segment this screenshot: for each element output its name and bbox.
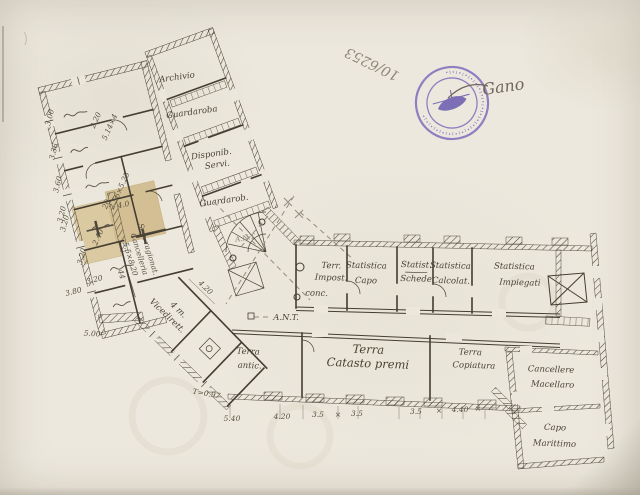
wall-410 <box>512 404 600 413</box>
dim-220: 2.20 <box>88 111 104 131</box>
door-arc <box>302 340 314 352</box>
dim-420: 4.20 <box>273 412 291 421</box>
room-label-archivio: Archivio <box>158 70 196 85</box>
room-label-statistica2: Statistica <box>430 261 471 272</box>
dim-35b: 3.5 <box>351 409 363 418</box>
circular-stamp: ∙ı∙ı∙ı∙ı∙ı∙ı∙ı∙ı∙ı∙ı∙ı∙ı∙ı∙ı∙ı∙ı∙ı∙ı∙ı∙ı… <box>409 60 494 145</box>
ant-label-lower: A.N.T. <box>272 313 299 323</box>
dim-sep: × <box>436 406 442 415</box>
ant-marker-box <box>248 313 254 319</box>
corner-pencil-mark <box>24 32 26 45</box>
file-number: 10/6253 <box>343 44 402 84</box>
room-label-antic: antic. <box>237 361 261 372</box>
dim-sep: ‥ <box>488 403 493 412</box>
dim-sep: × <box>475 404 481 413</box>
bottom-dimension-row: 5.40 4.20 3.5 × 3.5 3.5 × 4.40 × ‥ <box>224 403 494 423</box>
dim-540: 5.40 <box>224 414 241 423</box>
dim-35c: 3.5 <box>410 407 422 416</box>
room-label-statistica3: Statistica <box>494 261 535 272</box>
pencil-construction-lines <box>214 196 354 304</box>
top-wall <box>145 28 215 58</box>
dim-440: 4.40 <box>451 405 469 414</box>
room-label-macellaro: Macellaro <box>530 379 575 391</box>
room-label-conc: conc. <box>305 289 328 300</box>
scanned-floor-plan-sheet: 2.20 5.14×4 2.56×5.25 20 2.40 <box>0 0 640 495</box>
room-label-terra-copiatura: Terra <box>459 347 483 358</box>
room-label-marittimo: Marittimo <box>532 438 577 450</box>
room-label-copiatura: Copiatura <box>452 360 495 371</box>
right-wall-lower <box>174 194 194 254</box>
junction-wall <box>212 225 236 269</box>
dim-diagonal: 4.20 <box>196 278 215 297</box>
top-wall <box>294 240 592 251</box>
room-label-impost: Impost. <box>314 273 348 284</box>
window-gap <box>512 392 520 404</box>
room-label-impiegati: Impiegati <box>498 278 541 289</box>
floor-plan-drawing: 2.20 5.14×4 2.56×5.25 20 2.40 <box>0 0 640 495</box>
dim-380: 3.80 <box>64 285 83 298</box>
room-label-schede: Schede <box>400 274 432 285</box>
wall-350 <box>505 347 598 355</box>
room-label-statistica: Statistica <box>346 261 387 272</box>
room-label-terra-catasto: Terra <box>352 342 384 357</box>
room-label-capo: Capo <box>355 276 377 287</box>
wc-fixtures <box>199 338 220 359</box>
bottom-wall <box>518 457 604 469</box>
dim-500: 5.00 <box>84 329 101 339</box>
room-label-statist: Statist. <box>401 260 432 271</box>
room-label-calcolat: Calcolat. <box>432 276 470 287</box>
room-label-terr: Terr. <box>321 261 341 272</box>
room-label-cancellere: Cancellere <box>528 364 575 376</box>
lower-room-labels: Terra antic. Terra Catasto premi Terra C… <box>236 338 496 380</box>
dim-514x4: 5.14×4 <box>100 112 120 141</box>
junction-wall <box>262 207 300 245</box>
room-label-capo: Capo <box>544 423 566 434</box>
dim-sep: × <box>335 410 341 419</box>
stair-run <box>546 316 590 326</box>
door-gap <box>520 346 532 354</box>
signature-text: Gano <box>481 74 525 99</box>
top-wall <box>38 61 148 94</box>
room-label-servi: Servi. <box>204 159 230 172</box>
dim-35a: 3.5 <box>312 410 324 419</box>
signature: Gano <box>448 74 525 99</box>
door-gap <box>542 404 554 412</box>
corridor-door-gaps <box>312 305 506 341</box>
room-label-catasto-premi: Catasto premi <box>326 355 409 372</box>
